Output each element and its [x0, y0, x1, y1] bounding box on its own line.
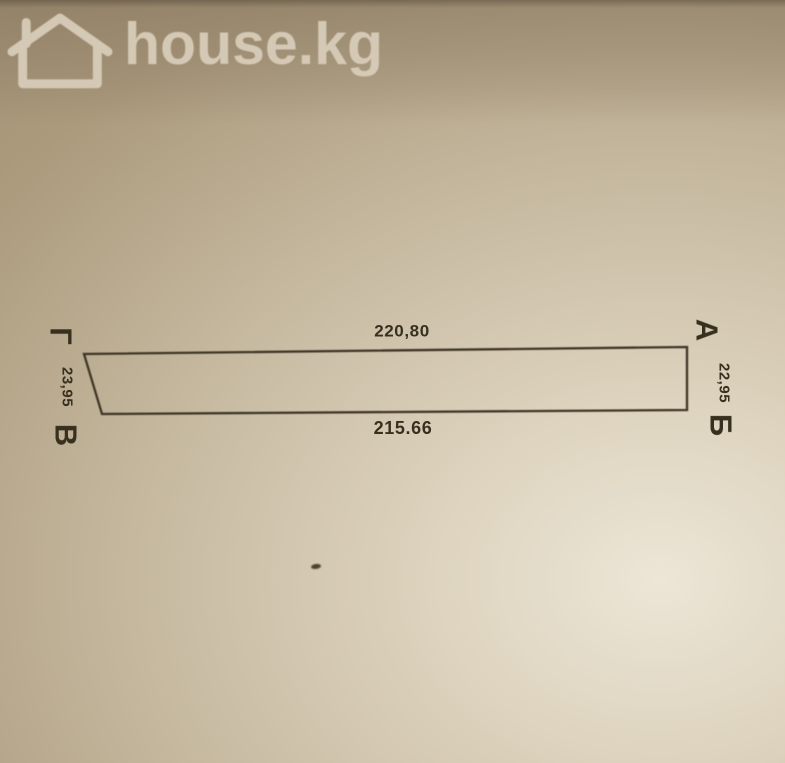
corner-label-a: А — [692, 319, 723, 341]
corner-label-v: В — [51, 424, 82, 446]
plot-outline-svg — [0, 0, 785, 763]
corner-label-g: Г — [46, 327, 77, 345]
corner-label-b: Б — [706, 414, 737, 436]
dimension-left: 23,95 — [60, 367, 75, 407]
dimension-top: 220,80 — [374, 323, 430, 340]
dimension-bottom: 215.66 — [374, 419, 433, 437]
plot-outline — [84, 347, 687, 414]
photo-background: house.kg 220,80 215.66 23,95 22,95 Г А Б… — [0, 0, 785, 763]
dimension-right: 22,95 — [717, 363, 732, 403]
